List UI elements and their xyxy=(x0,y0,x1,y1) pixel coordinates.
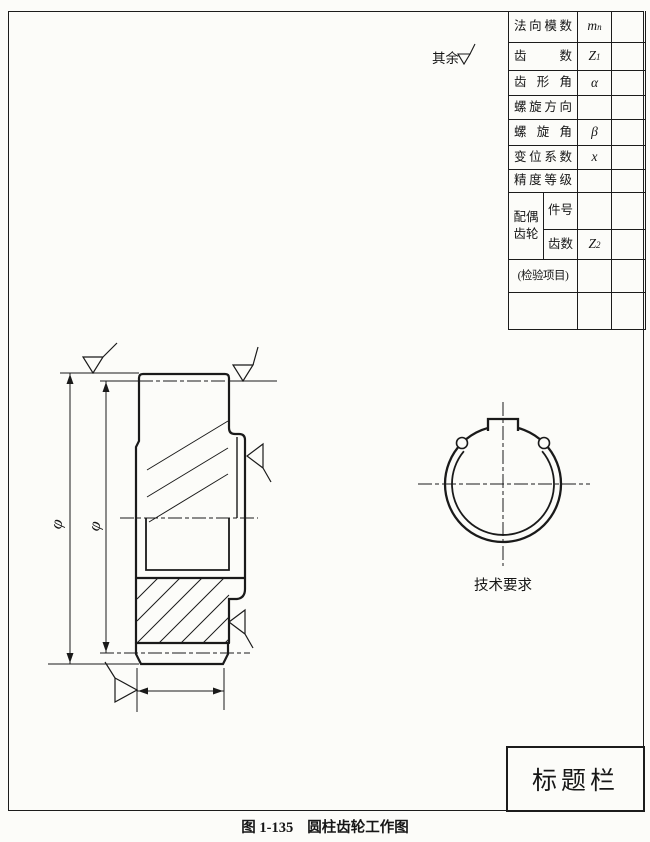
param-label xyxy=(509,293,578,330)
param-symbol xyxy=(578,96,612,120)
surface-roughness-icon xyxy=(233,347,258,381)
param-symbol xyxy=(578,170,612,193)
dimension-arrows xyxy=(67,374,224,695)
param-value xyxy=(612,193,646,230)
diameter-symbol: φ xyxy=(46,517,67,531)
diameter-symbol: φ xyxy=(84,519,105,533)
param-value xyxy=(612,230,646,260)
param-label: 变位系数 xyxy=(509,146,578,170)
surface-roughness-icon xyxy=(83,343,117,373)
surface-roughness-icon xyxy=(105,662,137,702)
surface-roughness-icon xyxy=(458,44,475,64)
param-value xyxy=(612,146,646,170)
param-symbol: β xyxy=(578,120,612,146)
title-block: 标题栏 xyxy=(506,746,645,812)
param-value xyxy=(612,71,646,96)
bore-outline xyxy=(146,518,229,570)
mating-gear-part-no-label: 件号 xyxy=(544,193,578,230)
param-symbol: α xyxy=(578,71,612,96)
gear-end-view xyxy=(418,402,590,566)
param-value xyxy=(612,120,646,146)
figure-number: 图 1-135 xyxy=(241,820,293,836)
section-hatching xyxy=(137,578,229,643)
surface-roughness-icon xyxy=(229,610,253,648)
inspection-items-label: (检验项目) xyxy=(509,260,578,293)
param-label: 齿形角 xyxy=(509,71,578,96)
surface-roughness-icons xyxy=(83,343,271,702)
figure-caption: 图 1-135圆柱齿轮工作图 xyxy=(0,816,650,837)
param-symbol xyxy=(578,193,612,230)
tech-req-label: 技术要求 xyxy=(474,577,532,594)
gear-parameter-table: 法向模数 mn 齿数 Z1 齿形角 α 螺旋方向 螺旋角 β 变位系数 x 精度… xyxy=(508,11,645,330)
param-value xyxy=(612,170,646,193)
title-block-label: 标题栏 xyxy=(532,761,619,797)
general-roughness-label: 其余 xyxy=(432,50,459,66)
general-roughness-note: 其余 xyxy=(432,44,475,66)
param-value xyxy=(612,11,646,43)
param-label: 齿数 xyxy=(509,43,578,71)
param-value xyxy=(612,96,646,120)
param-symbol: Z2 xyxy=(578,230,612,260)
param-label: 螺旋角 xyxy=(509,120,578,146)
helix-lines xyxy=(147,421,228,522)
param-label: 法向模数 xyxy=(509,11,578,43)
param-value xyxy=(612,43,646,71)
param-symbol xyxy=(578,260,612,293)
drawing-sheet: φ φ 其余 技术要求 法向模数 mn 齿数 Z1 齿 xyxy=(0,0,650,842)
param-symbol: x xyxy=(578,146,612,170)
param-symbol: Z1 xyxy=(578,43,612,71)
param-symbol xyxy=(578,293,612,330)
param-value xyxy=(612,293,646,330)
param-symbol: mn xyxy=(578,11,612,43)
figure-title: 圆柱齿轮工作图 xyxy=(307,820,409,836)
surface-roughness-icon xyxy=(247,444,271,482)
gear-section-view xyxy=(48,343,277,712)
relief-notch xyxy=(457,438,468,449)
mating-gear-teeth-label: 齿数 xyxy=(544,230,578,260)
param-label: 螺旋方向 xyxy=(509,96,578,120)
param-label: 精度等级 xyxy=(509,170,578,193)
relief-notch xyxy=(539,438,550,449)
mating-gear-group-label: 配偶齿轮 xyxy=(509,193,544,260)
param-value xyxy=(612,260,646,293)
